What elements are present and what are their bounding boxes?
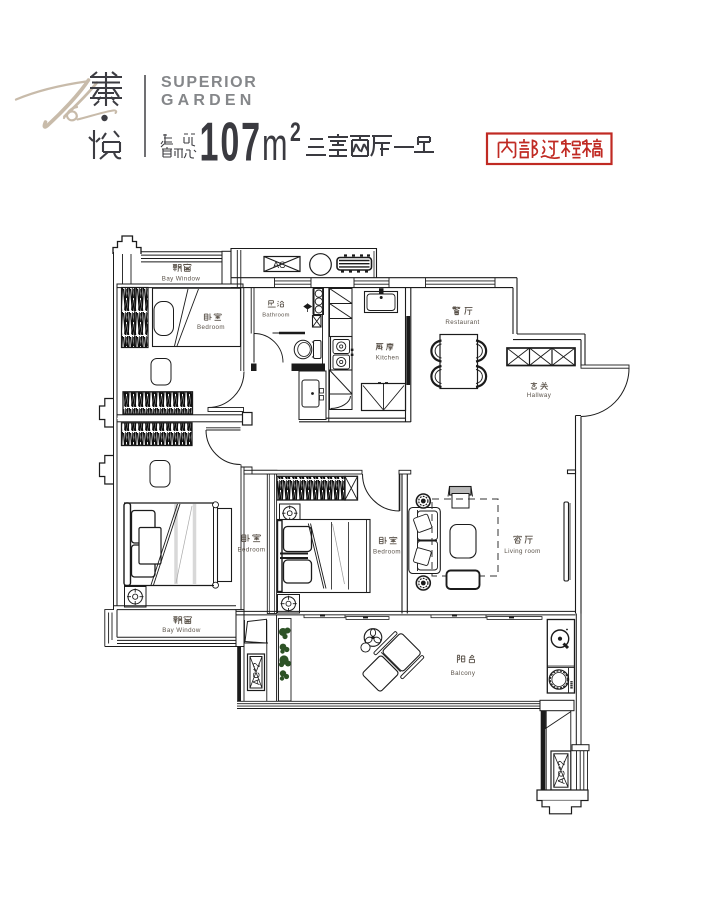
svg-text:Bedroom: Bedroom (373, 549, 401, 556)
svg-text:Bay Window: Bay Window (162, 627, 201, 634)
svg-text:AC*2: AC*2 (252, 662, 262, 685)
svg-text:GARDEN: GARDEN (161, 92, 256, 109)
svg-text:Kitchen: Kitchen (376, 355, 400, 362)
svg-text:Restaurant: Restaurant (445, 319, 479, 326)
svg-text:Balcony: Balcony (451, 670, 476, 677)
svg-text:Hallway: Hallway (527, 392, 552, 399)
svg-text:107: 107 (200, 111, 262, 172)
svg-text:Bedroom: Bedroom (238, 547, 266, 554)
svg-text:m: m (262, 120, 287, 170)
svg-text:Bathroom: Bathroom (262, 313, 290, 319)
svg-text:2: 2 (290, 117, 301, 147)
svg-text:Bedroom: Bedroom (197, 324, 225, 331)
svg-text:Living room: Living room (504, 548, 540, 555)
svg-text:AC: AC (273, 260, 286, 270)
svg-text:SUPERIOR: SUPERIOR (161, 74, 257, 91)
svg-text:AC*2: AC*2 (557, 760, 568, 784)
svg-text:Bay Window: Bay Window (162, 276, 201, 283)
